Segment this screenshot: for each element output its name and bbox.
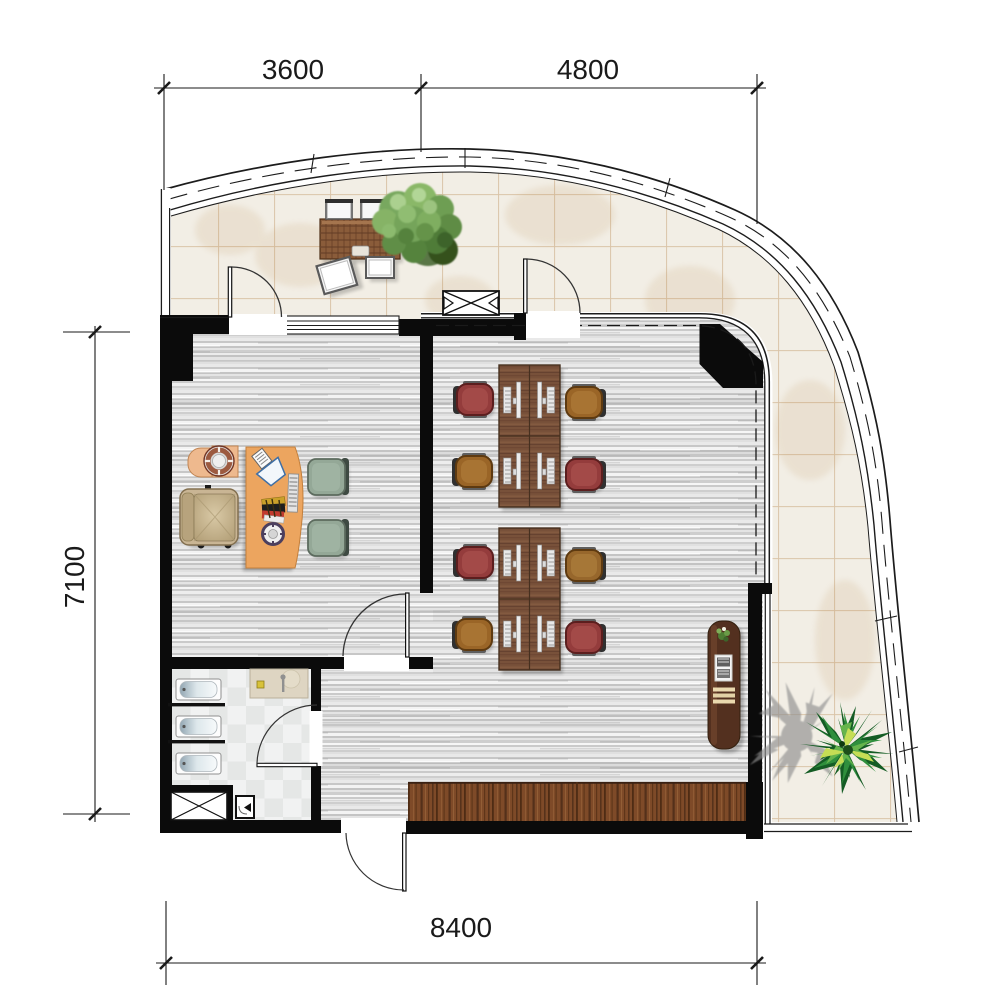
svg-text:7100: 7100: [59, 546, 90, 608]
svg-text:4800: 4800: [557, 54, 619, 85]
svg-text:8400: 8400: [430, 912, 492, 943]
svg-text:3600: 3600: [262, 54, 324, 85]
